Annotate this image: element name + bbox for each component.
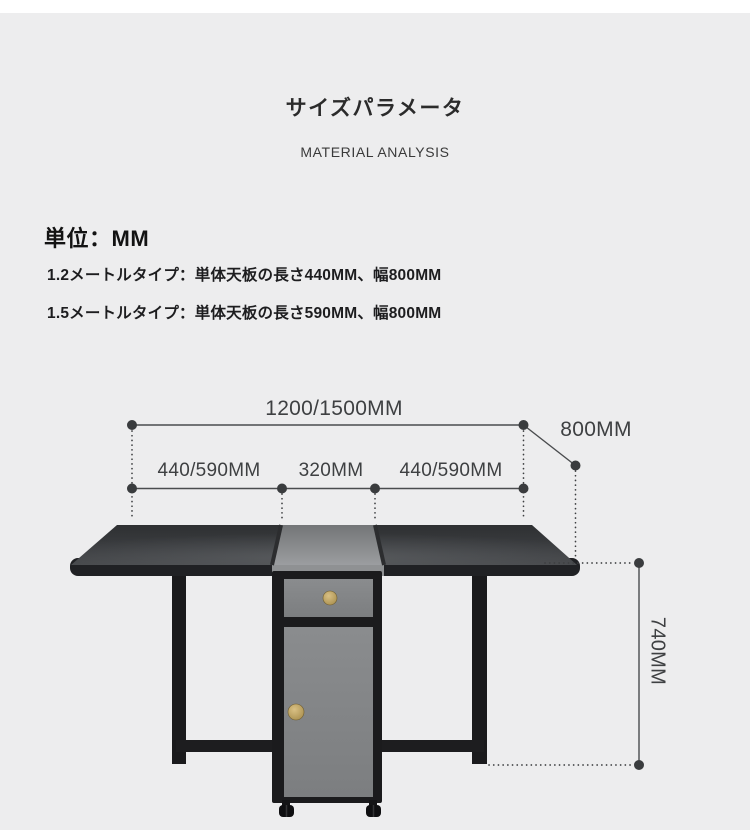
left-stretcher <box>176 740 282 752</box>
dimension-dot <box>634 558 644 568</box>
center-leaf-surface <box>272 525 384 565</box>
dimension-dot <box>571 461 581 471</box>
dim-label-total-length: 1200/1500MM <box>265 397 403 421</box>
dimension-dot <box>634 760 644 770</box>
dim-label-height: 740MM <box>646 617 669 685</box>
dim-label-depth: 800MM <box>560 418 632 442</box>
right-leg <box>472 565 487 764</box>
dim-label-left-leaf: 440/590MM <box>157 460 260 482</box>
dimension-dot <box>519 420 529 430</box>
dimension-dot <box>370 484 380 494</box>
right-stretcher <box>374 740 484 752</box>
dimension-dot <box>277 484 287 494</box>
door-knob <box>288 704 304 720</box>
dimension-dot <box>127 484 137 494</box>
drawer-knob <box>323 591 337 605</box>
size-parameter-section: サイズパラメータ MATERIAL ANALYSIS 単位：MM 1.2メートル… <box>0 0 750 830</box>
dim-label-right-leaf: 440/590MM <box>399 460 502 482</box>
dimension-dot <box>519 484 529 494</box>
dimension-dot <box>127 420 137 430</box>
dim-label-center-section: 320MM <box>299 460 364 482</box>
left-leg <box>172 565 186 764</box>
